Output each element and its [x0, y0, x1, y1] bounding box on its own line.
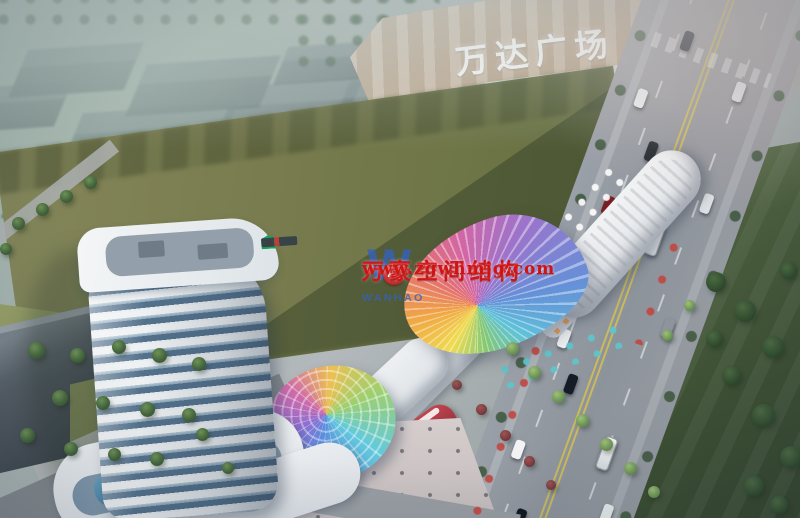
aerial-rendering-scene: 万达广场: [0, 0, 800, 518]
watermark: W Pd WANHAO 万豪空间结构 www.zgwhmjg.com: [362, 248, 632, 318]
watermark-url-text: www.zgwhmjg.com: [362, 259, 555, 279]
logo-brand-text: WANHAO: [362, 292, 425, 304]
